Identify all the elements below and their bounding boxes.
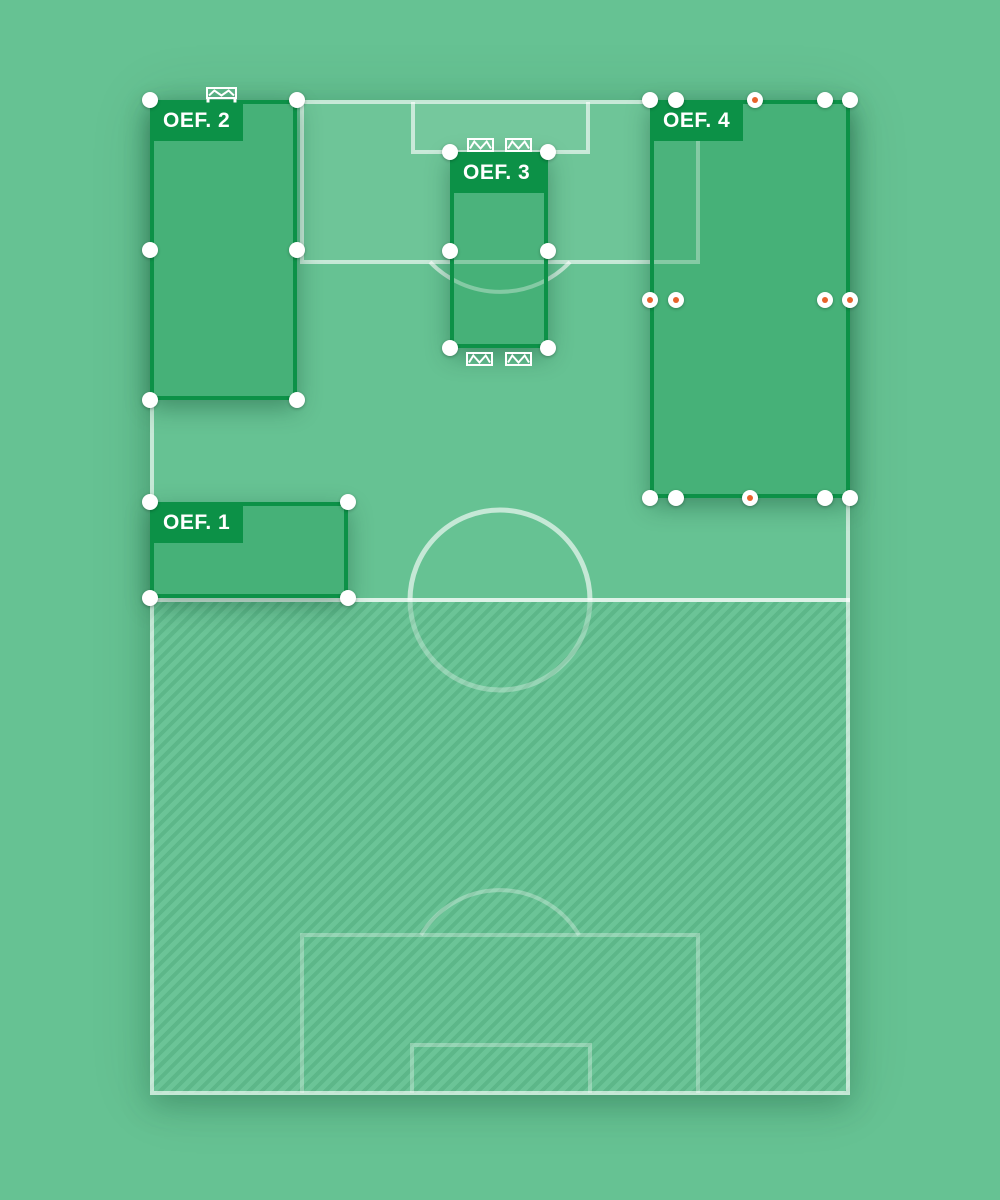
exercise-zone-oef-2[interactable]: OEF. 2: [150, 100, 297, 400]
unused-half-overlay: [150, 602, 850, 1093]
corner-handle-oef-3[interactable]: [442, 243, 458, 259]
corner-handle-oef-2[interactable]: [142, 92, 158, 108]
corner-handle-oef-1[interactable]: [142, 494, 158, 510]
midpoint-handle-oef-4[interactable]: [842, 292, 858, 308]
corner-handle-oef-3[interactable]: [540, 340, 556, 356]
corner-handle-oef-4[interactable]: [642, 490, 658, 506]
corner-handle-oef-4[interactable]: [668, 92, 684, 108]
zone-inner-rect-oef-4[interactable]: [676, 100, 825, 498]
corner-handle-oef-3[interactable]: [540, 144, 556, 160]
corner-handle-oef-2[interactable]: [289, 92, 305, 108]
midpoint-handle-oef-4[interactable]: [742, 490, 758, 506]
corner-handle-oef-4[interactable]: [842, 490, 858, 506]
exercise-zone-oef-1[interactable]: OEF. 1: [150, 502, 348, 598]
midpoint-handle-oef-4[interactable]: [747, 92, 763, 108]
corner-handle-oef-2[interactable]: [142, 392, 158, 408]
midpoint-handle-oef-4[interactable]: [668, 292, 684, 308]
mini-goal-oef3-top-left-icon[interactable]: [467, 138, 494, 152]
corner-handle-oef-1[interactable]: [340, 590, 356, 606]
corner-handle-oef-4[interactable]: [668, 490, 684, 506]
corner-handle-oef-1[interactable]: [340, 494, 356, 510]
zone-label-oef-3: OEF. 3: [450, 152, 548, 193]
mini-goal-oef3-top-right-icon[interactable]: [505, 138, 532, 152]
corner-handle-oef-4[interactable]: [817, 92, 833, 108]
zone-label-oef-2: OEF. 2: [150, 100, 243, 141]
corner-handle-oef-2[interactable]: [289, 392, 305, 408]
corner-handle-oef-4[interactable]: [642, 92, 658, 108]
mini-goal-oef2-icon[interactable]: [206, 87, 237, 103]
corner-handle-oef-4[interactable]: [817, 490, 833, 506]
midpoint-handle-oef-4[interactable]: [817, 292, 833, 308]
corner-handle-oef-1[interactable]: [142, 590, 158, 606]
corner-handle-oef-3[interactable]: [540, 243, 556, 259]
corner-handle-oef-3[interactable]: [442, 144, 458, 160]
corner-handle-oef-2[interactable]: [142, 242, 158, 258]
corner-handle-oef-4[interactable]: [842, 92, 858, 108]
zone-label-oef-1: OEF. 1: [150, 502, 243, 543]
corner-handle-oef-2[interactable]: [289, 242, 305, 258]
exercise-zone-oef-3[interactable]: OEF. 3: [450, 152, 548, 348]
corner-handle-oef-3[interactable]: [442, 340, 458, 356]
training-planner-canvas: OEF. 2OEF. 3OEF. 4OEF. 1: [0, 0, 1000, 1200]
mini-goal-oef3-bottom-right-icon[interactable]: [505, 352, 532, 366]
mini-goal-oef3-bottom-left-icon[interactable]: [466, 352, 493, 366]
midpoint-handle-oef-4[interactable]: [642, 292, 658, 308]
